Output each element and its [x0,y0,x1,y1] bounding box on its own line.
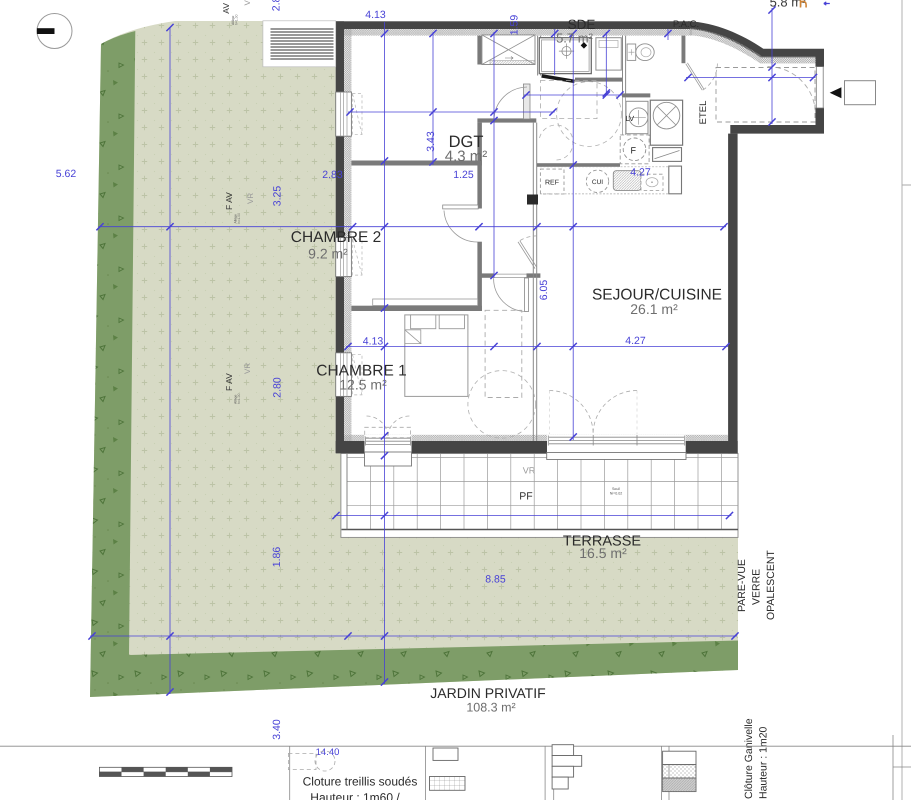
svg-text:Cloture treillis soudés: Cloture treillis soudés [303,775,418,789]
svg-text:VR: VR [523,466,536,476]
svg-text:9.2 m²: 9.2 m² [308,246,348,262]
svg-text:F: F [631,145,637,155]
svg-text:4.27: 4.27 [625,335,646,347]
svg-text:Clôture Ganivelle: Clôture Ganivelle [743,718,755,799]
svg-text:1.25: 1.25 [453,169,474,181]
svg-text:VR: VR [243,363,252,374]
svg-text:3.25: 3.25 [272,186,284,207]
svg-text:VR: VR [243,0,252,6]
svg-text:8.85: 8.85 [485,574,506,586]
svg-text:VR: VR [246,193,255,204]
svg-text:Seuil: Seuil [612,487,620,491]
svg-text:CHAMBRE 2: CHAMBRE 2 [291,229,381,246]
svg-text:3.43: 3.43 [425,131,437,152]
svg-text:12.5 m²: 12.5 m² [339,377,387,393]
svg-text:PARE-VUE: PARE-VUE [736,559,748,612]
svg-text:1.86: 1.86 [271,547,283,568]
svg-text:5.7 m²: 5.7 m² [556,31,594,46]
svg-text:h=1.00: h=1.00 [235,14,239,25]
svg-text:CUI: CUI [592,179,603,186]
svg-text:JARDIN PRIVATIF: JARDIN PRIVATIF [430,685,545,701]
svg-text:Hauteur : 1m60 /: Hauteur : 1m60 / [310,791,400,800]
svg-text:h=1.00: h=1.00 [237,393,241,404]
svg-text:2.83: 2.83 [322,169,343,181]
svg-text:LV: LV [626,114,635,123]
svg-text:26.1 m²: 26.1 m² [630,301,678,317]
svg-text:5.62: 5.62 [56,168,77,180]
svg-text:F AV: F AV [224,373,234,391]
svg-text:16.5 m²: 16.5 m² [579,545,627,561]
svg-text:1.59: 1.59 [509,15,521,36]
svg-text:AV: AV [221,3,231,14]
svg-text:P.A.C.: P.A.C. [673,19,699,30]
svg-text:Ni=0.02: Ni=0.02 [610,492,623,496]
svg-text:OPALESCENT: OPALESCENT [765,550,777,620]
svg-text:3.40: 3.40 [271,719,283,740]
svg-text:h=1.00: h=1.00 [237,213,241,224]
svg-text:REF: REF [545,180,559,187]
svg-text:PF: PF [519,491,532,503]
svg-text:4.3 m²: 4.3 m² [445,148,488,165]
svg-text:6.05: 6.05 [538,280,550,301]
svg-text:2.80: 2.80 [272,377,284,398]
svg-text:4.13: 4.13 [363,336,384,348]
svg-text:Hauteur : 1m20: Hauteur : 1m20 [758,726,770,799]
svg-text:4.13: 4.13 [365,9,386,21]
svg-text:4.27: 4.27 [630,167,651,179]
svg-text:ETEL: ETEL [698,101,709,125]
svg-text:14.40: 14.40 [316,747,340,758]
svg-text:108.3 m²: 108.3 m² [466,701,515,715]
svg-text:F AV: F AV [224,192,234,210]
svg-text:VERRE: VERRE [751,569,763,605]
svg-text:2.83: 2.83 [271,0,283,11]
